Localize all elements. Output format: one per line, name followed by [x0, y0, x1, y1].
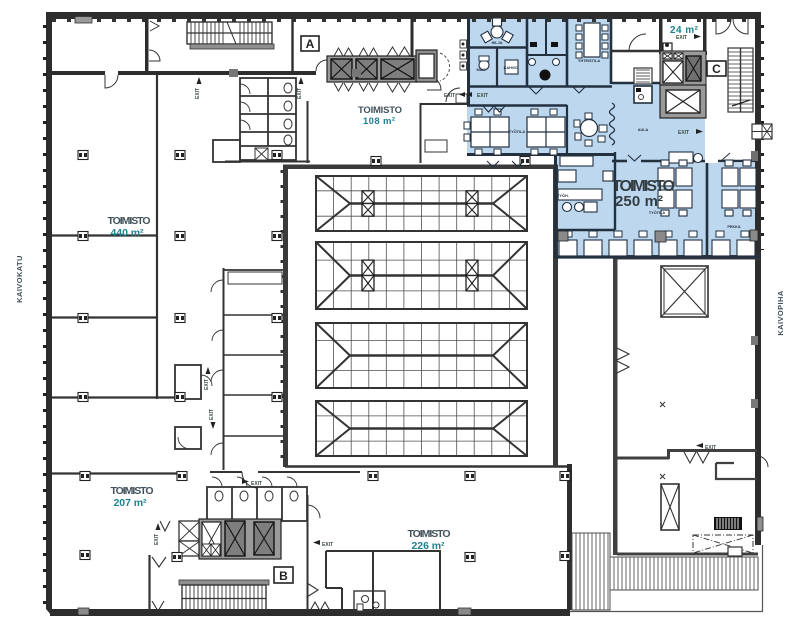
- svg-text:KAIVOPIHA: KAIVOPIHA: [776, 290, 785, 335]
- svg-text:TOIMISTO: TOIMISTO: [408, 528, 451, 540]
- svg-text:EXIT: EXIT: [297, 88, 303, 99]
- svg-text:HILJA: HILJA: [492, 41, 503, 45]
- svg-text:EXIT: EXIT: [678, 130, 689, 136]
- svg-text:PEKKA: PEKKA: [727, 225, 741, 229]
- svg-text:B: B: [279, 569, 288, 583]
- svg-text:EXIT: EXIT: [251, 481, 262, 487]
- svg-text:EXIT: EXIT: [705, 445, 716, 451]
- svg-text:EXIT: EXIT: [322, 542, 333, 548]
- svg-text:TOIMISTO: TOIMISTO: [108, 215, 151, 227]
- svg-text:EXIT: EXIT: [209, 409, 215, 420]
- svg-text:440 m²: 440 m²: [111, 227, 145, 239]
- svg-text:EXIT: EXIT: [444, 93, 455, 99]
- svg-text:TOIMISTO: TOIMISTO: [358, 105, 402, 116]
- svg-text:EXIT: EXIT: [154, 534, 160, 545]
- svg-text:MAIJ: MAIJ: [476, 68, 485, 72]
- svg-text:226 m²: 226 m²: [412, 540, 446, 552]
- svg-text:A: A: [306, 37, 315, 51]
- svg-text:EXIT: EXIT: [195, 88, 201, 99]
- svg-text:TYÖTILA: TYÖTILA: [509, 129, 525, 134]
- svg-text:207 m²: 207 m²: [114, 497, 148, 509]
- svg-text:KAIVOKATU: KAIVOKATU: [15, 255, 24, 303]
- svg-text:EXIT: EXIT: [204, 379, 210, 390]
- svg-text:EXIT: EXIT: [477, 93, 488, 99]
- svg-text:TYÖH.: TYÖH.: [557, 193, 569, 198]
- svg-text:TYÖTILA: TYÖTILA: [649, 210, 665, 215]
- svg-text:TOIMISTO: TOIMISTO: [111, 485, 154, 497]
- svg-text:C: C: [712, 62, 721, 76]
- svg-text:KAHVIO: KAHVIO: [504, 66, 519, 70]
- svg-text:EXIT: EXIT: [676, 35, 687, 41]
- svg-text:108 m²: 108 m²: [363, 116, 395, 127]
- svg-text:YHTEISTILA: YHTEISTILA: [578, 59, 600, 63]
- svg-text:250 m²: 250 m²: [615, 193, 663, 210]
- svg-text:AULA: AULA: [638, 128, 649, 132]
